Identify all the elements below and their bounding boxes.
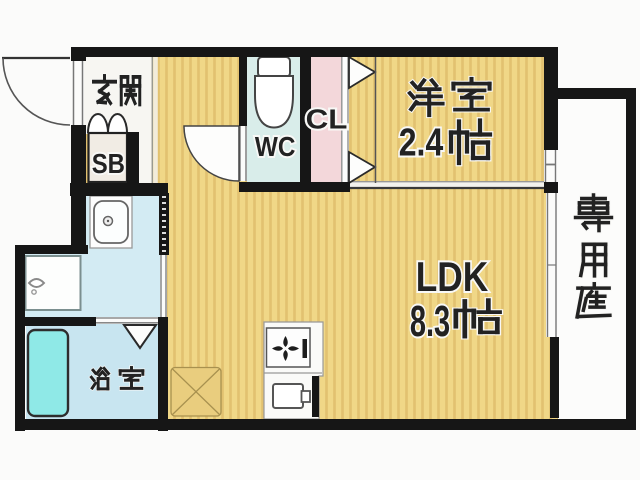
svg-text:WC: WC [255, 130, 296, 162]
svg-text:SB: SB [92, 150, 125, 180]
svg-text:8.3: 8.3 [410, 296, 450, 346]
svg-text:2.4: 2.4 [399, 121, 444, 165]
svg-text:LDK: LDK [416, 254, 488, 301]
svg-text:CL: CL [306, 104, 348, 135]
